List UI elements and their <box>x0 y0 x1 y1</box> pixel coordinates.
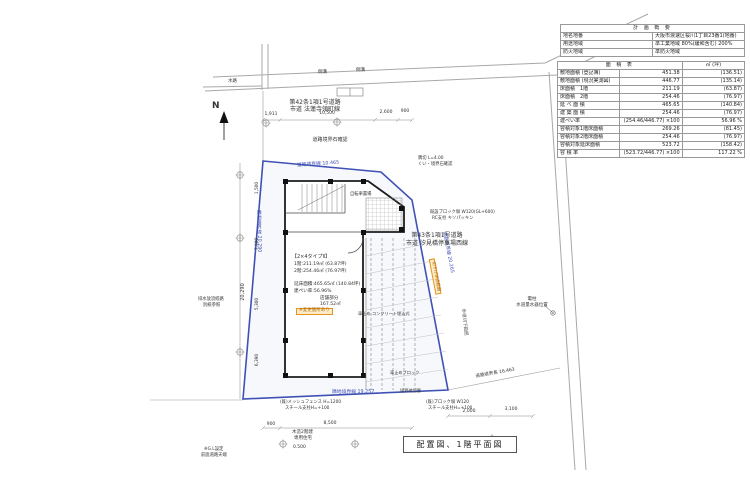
area-value-sqm: 211.19 <box>620 86 682 94</box>
area-table-row: 建ぺい率(254.46/446.77) ×10056.96 % <box>558 118 745 126</box>
row-value: 準防火地域 <box>653 49 745 57</box>
area-value-sqm: 523.72 <box>620 142 682 150</box>
plan-summary-table: 計 画 概 要 地名地番大阪市浪速区桜川1丁目23番1(地番)用途地域準工業地域… <box>560 24 745 57</box>
area-value-tsubo: (140.84) <box>682 102 744 110</box>
drawing-sheet: N第42条1項1号道路市道 法蓮寺領町線道路境界石確認水路側溝側溝1,91110… <box>0 0 750 500</box>
area-value-tsubo: (81.45) <box>682 126 744 134</box>
area-table-row: 床面積 2階254.46(76.97) <box>558 94 745 102</box>
area-value-tsubo: (76.97) <box>682 94 744 102</box>
area-table-row: 床面積 1階211.19(63.87) <box>558 86 745 94</box>
area-value-tsubo: (136.51) <box>682 70 744 78</box>
area-value-tsubo: 56.96 % <box>682 118 744 126</box>
area-name: 敷地面積 (現況実測図) <box>558 78 620 86</box>
row-value: 準工業地域 80%(緩和含む) 200% <box>653 41 745 49</box>
area-table-row: 容積対象1階床面積269.26(81.45) <box>558 126 745 134</box>
area-value-sqm: 269.26 <box>620 126 682 134</box>
area-value-tsubo: (76.97) <box>682 110 744 118</box>
area-table: 面 積 表 ㎡ (坪) 敷地面積 (登記簿)451.38(136.51)敷地面積… <box>557 61 745 158</box>
drawing-title-box: 配置図、1階平面図 <box>403 436 517 453</box>
area-table-row: 容積対象2階床面積254.46(76.97) <box>558 134 745 142</box>
plan-summary-row: 地名地番大阪市浪速区桜川1丁目23番1(地番) <box>561 33 745 41</box>
area-name: 敷地面積 (登記簿) <box>558 70 620 78</box>
area-name: 延 べ 面 積 <box>558 102 620 110</box>
area-value-sqm: 446.77 <box>620 78 682 86</box>
area-value-tsubo: (76.97) <box>682 134 744 142</box>
area-name: 床面積 1階 <box>558 86 620 94</box>
area-table-row: 建 築 面 積254.46(76.97) <box>558 110 745 118</box>
area-value-tsubo: (158.42) <box>682 142 744 150</box>
row-label: 地名地番 <box>561 33 653 41</box>
area-table-title: 面 積 表 <box>558 62 683 70</box>
area-value-tsubo: (135.14) <box>682 78 744 86</box>
area-name: 容積対象延床面積 <box>558 142 620 150</box>
area-value-sqm: 254.46 <box>620 94 682 102</box>
row-label: 防火地域 <box>561 49 653 57</box>
area-name: 容積対象1階床面積 <box>558 126 620 134</box>
area-name: 建 築 面 積 <box>558 110 620 118</box>
area-table-body: 敷地面積 (登記簿)451.38(136.51)敷地面積 (現況実測図)446.… <box>558 70 745 158</box>
area-name: 床面積 2階 <box>558 94 620 102</box>
utility-pole-marker <box>551 311 555 315</box>
area-value-sqm: 254.46 <box>620 110 682 118</box>
area-value-sqm: 254.46 <box>620 134 682 142</box>
plan-summary-row: 防火地域準防火地域 <box>561 49 745 57</box>
plan-summary-row: 用途地域準工業地域 80%(緩和含む) 200% <box>561 41 745 49</box>
area-table-row: 延 べ 面 積465.65(140.84) <box>558 102 745 110</box>
area-table-row: 敷地面積 (登記簿)451.38(136.51) <box>558 70 745 78</box>
row-value: 大阪市浪速区桜川1丁目23番1(地番) <box>653 33 745 41</box>
area-name: 容 積 率 <box>558 150 620 158</box>
area-value-sqm: 451.38 <box>620 70 682 78</box>
plan-summary-body: 地名地番大阪市浪速区桜川1丁目23番1(地番)用途地域準工業地域 80%(緩和含… <box>561 33 745 57</box>
area-table-row: 敷地面積 (現況実測図)446.77(135.14) <box>558 78 745 86</box>
porch-grid-hatch <box>366 198 402 230</box>
area-name: 容積対象2階床面積 <box>558 134 620 142</box>
drawing-title: 配置図、1階平面図 <box>416 440 503 449</box>
area-value-sqm: (254.46/446.77) ×100 <box>620 118 682 126</box>
row-label: 用途地域 <box>561 41 653 49</box>
area-table-unit-header: ㎡ (坪) <box>682 62 744 70</box>
legend-box <box>337 88 363 96</box>
north-arrow-icon <box>220 111 229 140</box>
area-value-tsubo: (63.87) <box>682 86 744 94</box>
plan-summary-title: 計 画 概 要 <box>561 25 745 33</box>
area-table-row: 容積対象延床面積523.72(158.42) <box>558 142 745 150</box>
area-name: 建ぺい率 <box>558 118 620 126</box>
area-value-tsubo: 117.22 % <box>682 150 744 158</box>
area-value-sqm: 465.65 <box>620 102 682 110</box>
area-value-sqm: (523.72/446.77) ×100 <box>620 150 682 158</box>
area-table-row: 容 積 率(523.72/446.77) ×100117.22 % <box>558 150 745 158</box>
